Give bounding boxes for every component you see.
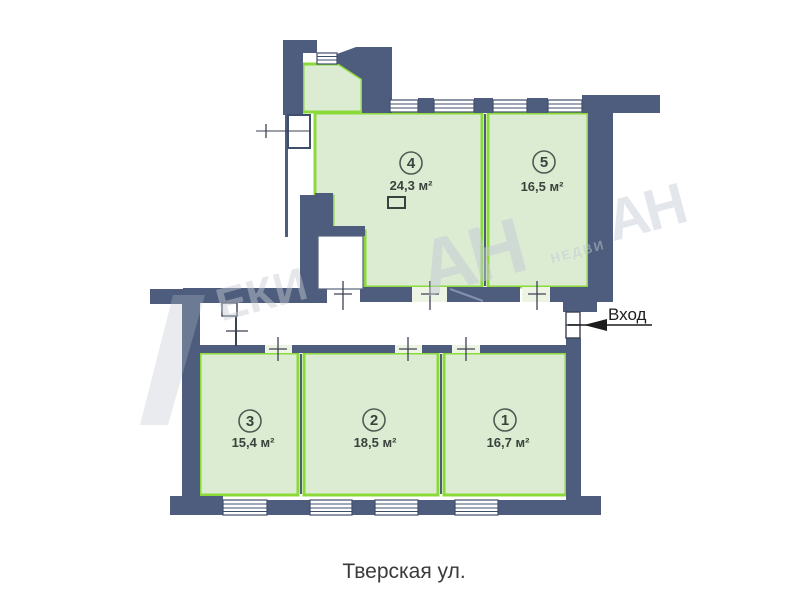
- wall-niche-step2: [333, 226, 365, 236]
- window: [434, 100, 474, 112]
- wall-top-right-run: [582, 95, 660, 113]
- room-4-furniture-symbol: [388, 197, 405, 208]
- entrance-label: Вход: [608, 305, 647, 324]
- wall-top-pier: [418, 98, 434, 113]
- room-3-area: 15,4 м²: [232, 435, 276, 450]
- entrance-arrow-icon: [584, 319, 607, 331]
- wall-right-lower: [566, 338, 581, 500]
- room-5-area: 16,5 м²: [521, 179, 565, 194]
- wall-top-stub-top-bar: [283, 40, 317, 53]
- wall-top-pier: [474, 98, 493, 113]
- floor-plan-svg: ЕКИ АН АН НЕДВИ 4 24,3 м² 5 16,5 м² 3 15…: [0, 0, 799, 600]
- wall-bottom-pier: [418, 500, 455, 515]
- room-4-number: 4: [407, 155, 416, 172]
- wall-corridor-top-b: [360, 287, 412, 302]
- watermark-fragment-text: ЕКИ: [210, 257, 312, 331]
- wall-bottom-left-corner: [170, 496, 223, 515]
- wall-corridor-bottom-a: [200, 345, 265, 353]
- street-label: Тверская ул.: [342, 560, 465, 583]
- wall-niche-step1: [315, 193, 333, 236]
- room-5-number: 5: [540, 154, 548, 171]
- wall-corridor-bottom-c: [422, 345, 452, 353]
- wall-bottom-pier: [267, 500, 310, 515]
- wall-bottom-pier: [352, 500, 375, 515]
- room-2-area: 18,5 м²: [354, 435, 398, 450]
- floor-plan-page: ЕКИ АН АН НЕДВИ 4 24,3 м² 5 16,5 м² 3 15…: [0, 0, 799, 600]
- room-4-area: 24,3 м²: [390, 178, 434, 193]
- room-3-number: 3: [246, 413, 254, 430]
- entrance-door: [566, 325, 580, 338]
- wall-top-pier: [527, 98, 548, 113]
- window: [390, 100, 418, 112]
- wall-bottom-right-run: [498, 500, 583, 515]
- window: [548, 100, 582, 112]
- entrance-door: [566, 312, 580, 325]
- window: [317, 53, 337, 64]
- wall-entrance-step: [563, 302, 597, 312]
- wall-corridor-bottom-b: [292, 345, 395, 353]
- room-1-area: 16,7 м²: [487, 435, 531, 450]
- room-1-number: 1: [501, 412, 509, 429]
- wall-corridor-bottom-d: [480, 345, 566, 353]
- room-2-number: 2: [370, 412, 378, 429]
- niche-shaft: [318, 236, 363, 289]
- window: [493, 100, 527, 112]
- wall-corridor-top-d: [550, 287, 566, 302]
